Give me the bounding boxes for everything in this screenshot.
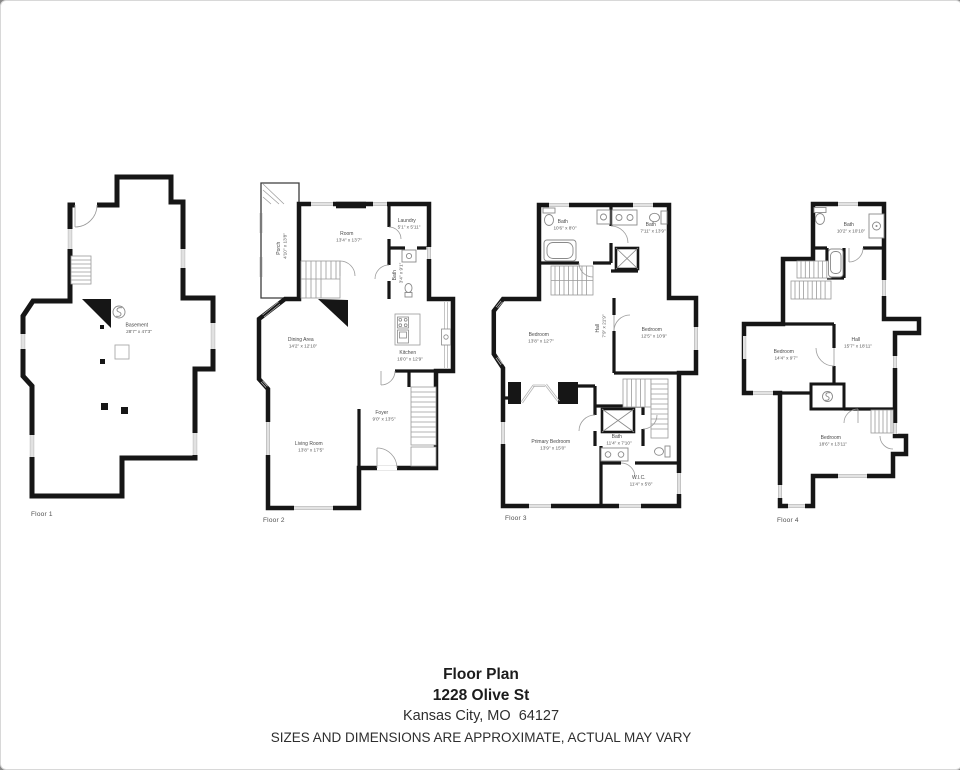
room-dims: 7'11" x 13'9" <box>640 229 666 234</box>
room-name: Dining Area <box>288 337 314 343</box>
bath-closet-icon <box>602 409 634 432</box>
room-name: Room <box>340 231 353 237</box>
room-label-living-room: Living Room 13'8" x 17'5" <box>295 432 327 453</box>
room-dims: 12'5" x 10'9" <box>641 334 667 339</box>
room-dims: 13'9" x 15'0" <box>540 446 566 451</box>
room-name: Bath <box>392 270 398 281</box>
attic-stairs-icon <box>871 410 893 433</box>
room-label-bedroom-left: Bedroom 14'4" x 9'7" <box>774 340 799 361</box>
room-label-dining-area: Dining Area 14'2" x 12'10" <box>288 328 318 349</box>
floor-2-plan: Porch 4'10" x 13'8" Room 13'4" x 13'7" L… <box>257 171 457 521</box>
floor-4-caption: Floor 4 <box>777 517 799 524</box>
room-name: Bedroom <box>821 435 841 441</box>
floor-1-posts <box>100 325 129 414</box>
floor-3-interior-walls <box>503 205 679 506</box>
floor-1-caption: Floor 1 <box>31 511 53 518</box>
room-label-basement: Basement 28'7" x 47'3" <box>126 314 153 335</box>
bay-sink <box>442 329 451 345</box>
floor-2-caption: Floor 2 <box>263 517 285 524</box>
floor-1-stairs-icon <box>71 256 91 284</box>
room-dims: 10'6" x 8'0" <box>553 226 576 231</box>
floor-3-caption: Floor 3 <box>505 515 527 522</box>
footer-disclaimer: SIZES AND DIMENSIONS ARE APPROXIMATE, AC… <box>1 727 960 748</box>
room-name: Kitchen <box>399 350 416 356</box>
room-dims: 4'10" x 13'8" <box>283 233 288 259</box>
room-dims: 13'8" x 12'7" <box>528 339 554 344</box>
room-dims: 5'1" x 5'11" <box>398 225 421 230</box>
room-dims: 11'4" x 5'8" <box>630 482 653 487</box>
room-label-bath: Bath 10'2" x 10'10" <box>837 213 866 234</box>
room-dims: 13'8" x 17'5" <box>298 448 324 453</box>
room-name: Bath <box>646 222 657 228</box>
floor-4-stairs-icon <box>791 261 831 299</box>
floor-2-stairs-icon <box>301 261 340 298</box>
floor-1-walls <box>23 177 213 496</box>
room-name: Foyer <box>375 410 388 416</box>
room-name: Laundry <box>398 218 417 224</box>
floor-1-windows <box>20 229 216 457</box>
furnace-icon <box>113 306 125 318</box>
floor-3-stairs-icon <box>551 266 593 295</box>
room-name: W.I.C. <box>632 475 646 481</box>
footer-title: Floor Plan <box>1 664 960 685</box>
room-dims: 16'0" x 12'9" <box>397 357 423 362</box>
room-name: Living Room <box>295 441 323 447</box>
bath-fixtures <box>402 250 416 297</box>
footer-address: 1228 Olive St <box>1 685 960 706</box>
room-dims: 28'7" x 47'3" <box>126 329 152 334</box>
floor-3-walls <box>494 205 696 506</box>
room-dims: 11'4" x 7'10" <box>606 441 632 446</box>
floor-1-plan: Basement 28'7" x 47'3" <box>19 171 239 519</box>
room-label-bath-1: Bath 10'6" x 8'0" <box>553 210 576 231</box>
room-label-foyer: Foyer 9'0" x 13'5" <box>372 401 395 422</box>
linen-closet-icon <box>616 248 638 269</box>
room-label-primary-bedroom: Primary Bedroom 13'9" x 15'0" <box>531 430 574 451</box>
room-name: Bath <box>612 434 623 440</box>
room-dims: 18'6" x 13'11" <box>819 442 847 447</box>
room-label-hall: Hall 7'9" x 21'9" <box>586 314 607 337</box>
room-label-bedroom-bottom: Bedroom 18'6" x 13'11" <box>819 426 847 447</box>
room-name: Bedroom <box>774 349 794 355</box>
foyer-stairs-icon <box>411 387 436 466</box>
floor-2-chimney <box>318 299 348 327</box>
room-name: Bedroom <box>529 332 549 338</box>
floor-2-doors <box>340 227 401 470</box>
room-label-bedroom-right: Bedroom 12'5" x 10'9" <box>641 318 667 339</box>
floor-1-chimney <box>82 299 111 328</box>
room-name: Basement <box>126 323 149 329</box>
room-dims: 3'4" x 9'1" <box>399 262 404 283</box>
room-name: Hall <box>595 324 601 333</box>
footer-city: Kansas City, MO 64127 <box>1 706 960 727</box>
room-name: Bath <box>844 222 855 228</box>
floor-4-plan: Bath 10'2" x 10'10" Bedroom 14'4" x 9'7"… <box>743 196 933 516</box>
room-dims: 14'2" x 12'10" <box>289 344 318 349</box>
floor-1-door <box>75 203 97 228</box>
furnace-closet <box>811 384 844 409</box>
footer: Floor Plan 1228 Olive St Kansas City, MO… <box>1 664 960 748</box>
chimney-wall <box>336 202 366 209</box>
room-label-hall: Hall 15'7" x 18'11" <box>844 328 872 349</box>
room-dims: 9'0" x 13'5" <box>372 417 395 422</box>
room-dims: 14'4" x 9'7" <box>774 356 797 361</box>
room-name: Hall <box>851 337 860 343</box>
floor-3-plan: Bath 10'6" x 8'0" Bath 7'11" x 13'9" Bed… <box>493 193 708 518</box>
floor-plan-sheet: Basement 28'7" x 47'3" <box>0 0 960 770</box>
room-label-wic: W.I.C. 11'4" x 5'8" <box>630 466 653 487</box>
room-name: Bedroom <box>642 327 662 333</box>
room-dims: 10'2" x 10'10" <box>837 229 866 234</box>
room-dims: 15'7" x 18'11" <box>844 344 872 349</box>
room-label-room: Room 13'4" x 13'7" <box>336 222 362 243</box>
room-label-bedroom-left: Bedroom 13'8" x 12'7" <box>528 323 554 344</box>
room-name: Bath <box>558 219 569 225</box>
room-name: Primary Bedroom <box>531 439 570 445</box>
room-label-laundry: Laundry 5'1" x 5'11" <box>398 209 421 230</box>
room-dims: 7'9" x 21'9" <box>602 314 607 337</box>
room-name: Porch <box>276 241 282 254</box>
room-dims: 13'4" x 13'7" <box>336 238 362 243</box>
